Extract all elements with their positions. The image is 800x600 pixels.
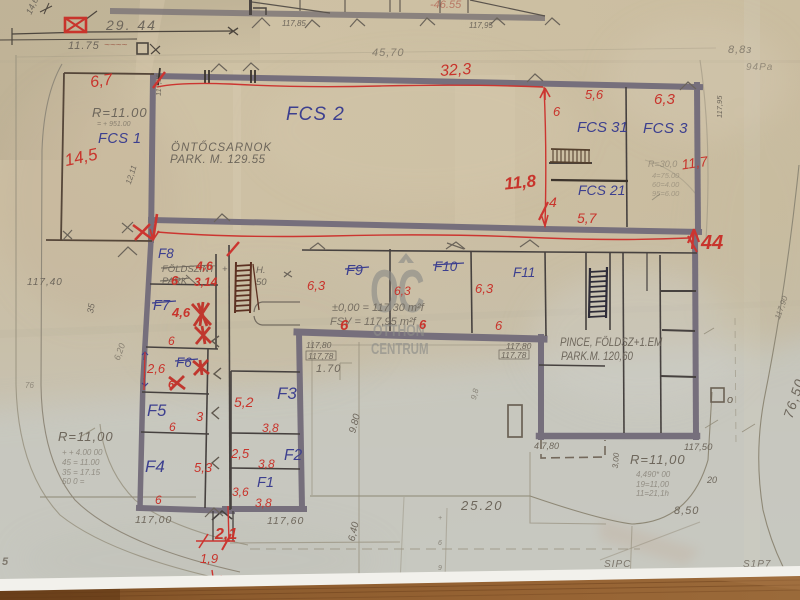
svg-text:32,3: 32,3 — [439, 61, 471, 80]
svg-text:117,50: 117,50 — [684, 442, 713, 453]
svg-text:R=11,00: R=11,00 — [630, 452, 686, 467]
svg-text:8,8з: 8,8з — [728, 44, 752, 56]
svg-text:F11: F11 — [513, 265, 535, 280]
svg-text:94Pa: 94Pa — [746, 62, 773, 73]
svg-text:117,95: 117,95 — [469, 21, 493, 30]
svg-text:1.70: 1.70 — [316, 363, 341, 375]
svg-text:6: 6 — [419, 317, 427, 332]
svg-text:4 7,80: 4 7,80 — [534, 441, 559, 451]
svg-text:9: 9 — [438, 565, 442, 572]
svg-text:4,490* 00: 4,490* 00 — [636, 470, 671, 479]
svg-text:F5: F5 — [147, 402, 167, 420]
svg-text:3,00: 3,00 — [611, 452, 621, 469]
svg-text:6,7: 6,7 — [89, 71, 114, 91]
svg-text:FCS 21: FCS 21 — [578, 182, 625, 198]
svg-text:= + 951.00: = + 951.00 — [97, 121, 131, 128]
svg-text:6,3: 6,3 — [307, 278, 326, 293]
svg-text:+: + — [222, 264, 228, 275]
svg-text:4: 4 — [549, 194, 557, 210]
svg-text:3,8: 3,8 — [262, 421, 279, 435]
svg-text:2,1: 2,1 — [214, 526, 237, 543]
svg-text:PARK.M. 120,60: PARK.M. 120,60 — [561, 350, 633, 363]
svg-text:FCS 31: FCS 31 — [577, 119, 628, 136]
svg-text:-46.55: -46.55 — [430, 0, 462, 11]
svg-text:F10: F10 — [434, 259, 458, 274]
svg-text:R=11,00: R=11,00 — [58, 429, 114, 444]
svg-text:F2: F2 — [284, 447, 302, 464]
svg-text:76: 76 — [25, 381, 34, 390]
svg-text:6: 6 — [168, 379, 175, 391]
svg-text:45 = 11.00: 45 = 11.00 — [62, 458, 100, 467]
svg-text:117,78: 117,78 — [501, 350, 527, 360]
svg-text:FCS 2: FCS 2 — [286, 104, 345, 125]
svg-text:R=30,0: R=30,0 — [648, 159, 677, 169]
svg-text:117,95: 117,95 — [715, 95, 724, 118]
svg-text:8,50: 8,50 — [674, 505, 699, 517]
svg-text:60=4.00: 60=4.00 — [652, 180, 680, 189]
svg-text:6: 6 — [155, 493, 162, 507]
svg-text:117,60: 117,60 — [267, 515, 304, 527]
svg-text:95=6.00: 95=6.00 — [652, 189, 680, 198]
svg-text:6: 6 — [168, 334, 175, 348]
svg-text:ÖNTŐCSARNOK: ÖNTŐCSARNOK — [171, 140, 272, 154]
svg-text:6: 6 — [340, 317, 349, 334]
svg-text:11,8: 11,8 — [503, 171, 537, 193]
svg-text:117,80: 117,80 — [306, 340, 332, 350]
svg-text:F4: F4 — [145, 457, 165, 476]
svg-text:o: o — [727, 394, 733, 406]
svg-text:11=21,1h: 11=21,1h — [636, 489, 670, 498]
svg-text:19=11,00: 19=11,00 — [636, 480, 670, 489]
svg-text:20: 20 — [706, 475, 717, 485]
svg-text:6: 6 — [553, 104, 561, 119]
svg-text:H.: H. — [256, 265, 266, 276]
svg-text:4,6: 4,6 — [195, 259, 213, 273]
svg-text:3,8: 3,8 — [255, 496, 272, 510]
svg-text:25.20: 25.20 — [460, 498, 504, 513]
svg-text:±0,00 = 117,30 m²f: ±0,00 = 117,30 m²f — [332, 302, 425, 314]
svg-text:6: 6 — [495, 318, 503, 333]
svg-text:F7: F7 — [153, 298, 171, 314]
svg-text:5: 5 — [2, 556, 9, 568]
svg-text:PARK. M. 129.55: PARK. M. 129.55 — [170, 154, 266, 166]
svg-text:+: + — [438, 515, 442, 522]
svg-text:4,6: 4,6 — [171, 305, 191, 320]
svg-text:117,00: 117,00 — [135, 514, 172, 526]
svg-text:F9: F9 — [346, 263, 363, 279]
svg-text:6: 6 — [171, 273, 179, 288]
svg-text:117,78: 117,78 — [308, 351, 334, 361]
svg-text:4=75.00: 4=75.00 — [652, 171, 680, 180]
svg-text:FCS 3: FCS 3 — [643, 120, 688, 137]
svg-text:5,2: 5,2 — [234, 394, 254, 410]
svg-text:F3: F3 — [277, 384, 297, 403]
svg-text:SIPC: SIPC — [604, 559, 631, 570]
svg-text:F8: F8 — [158, 246, 174, 261]
svg-text:1,9: 1,9 — [200, 551, 218, 566]
svg-text:50 0 =: 50 0 = — [62, 477, 85, 486]
svg-text:3: 3 — [196, 409, 204, 424]
svg-text:F6: F6 — [176, 355, 192, 370]
svg-text:F1: F1 — [257, 475, 274, 491]
svg-text:117,85: 117,85 — [282, 19, 306, 28]
svg-text:44: 44 — [700, 232, 723, 254]
svg-text:6,3: 6,3 — [654, 91, 676, 108]
svg-text:6: 6 — [438, 540, 442, 547]
svg-text:5,3: 5,3 — [194, 460, 213, 475]
svg-text:5,6: 5,6 — [585, 87, 604, 102]
svg-text:35 = 17.15: 35 = 17.15 — [62, 468, 101, 477]
svg-text:~~~~: ~~~~ — [104, 40, 128, 51]
svg-text:117,40: 117,40 — [27, 277, 63, 288]
svg-text:50: 50 — [256, 277, 267, 288]
svg-text:45,70: 45,70 — [372, 47, 405, 59]
svg-text:6,3: 6,3 — [475, 281, 494, 296]
svg-text:3,6: 3,6 — [232, 485, 249, 499]
svg-text:+ + 4.00 00: + + 4.00 00 — [62, 448, 103, 457]
svg-text:11.75: 11.75 — [68, 40, 100, 52]
svg-text:6: 6 — [169, 420, 176, 434]
svg-text:FCS 1: FCS 1 — [98, 131, 142, 147]
svg-text:29. 44: 29. 44 — [105, 17, 157, 33]
svg-text:3,8: 3,8 — [258, 457, 275, 471]
svg-text:6,3: 6,3 — [394, 284, 411, 298]
svg-text:PINCE, FÖLDSZ+1.EM: PINCE, FÖLDSZ+1.EM — [560, 336, 662, 349]
svg-text:2,6: 2,6 — [146, 361, 166, 376]
svg-text:2,5: 2,5 — [230, 446, 250, 461]
svg-text:R=11.00: R=11.00 — [92, 105, 148, 120]
svg-text:CENTRUM: CENTRUM — [371, 339, 429, 357]
svg-text:3,14: 3,14 — [194, 275, 218, 289]
svg-text:5,7: 5,7 — [577, 210, 598, 226]
